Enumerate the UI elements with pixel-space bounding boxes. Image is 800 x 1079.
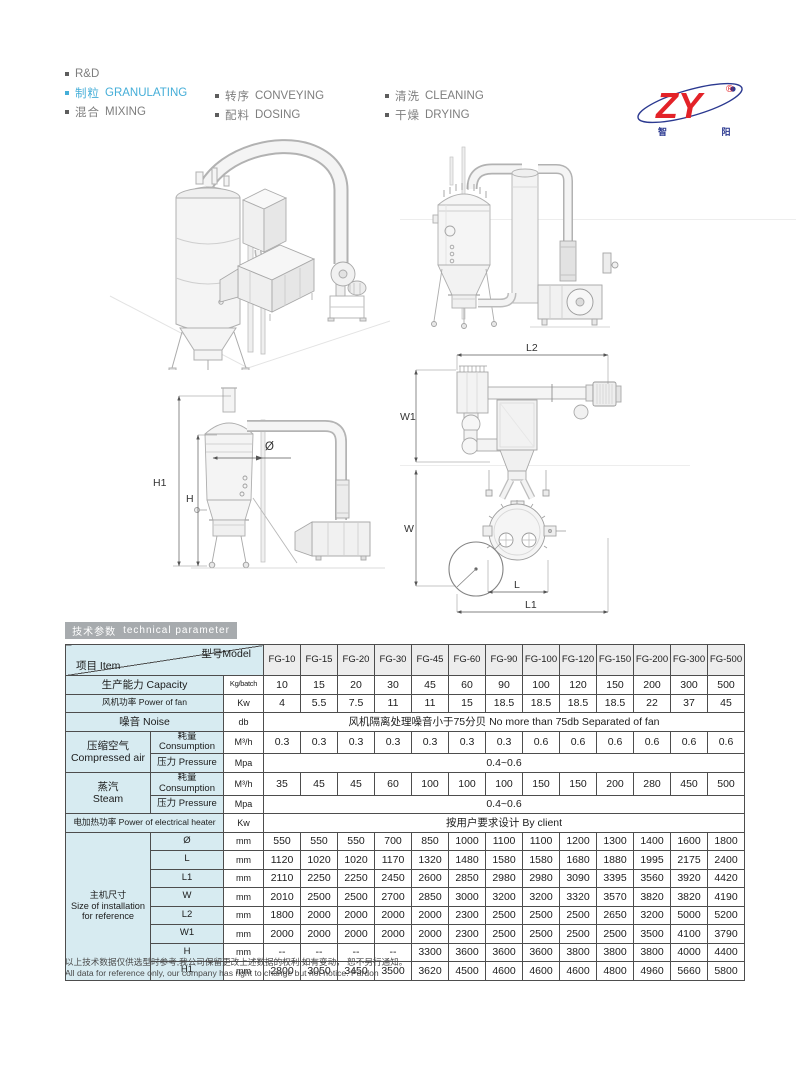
corner-model-label: 型号Model — [201, 648, 251, 660]
value-cell: 45 — [708, 694, 745, 713]
value-cell: 1000 — [449, 832, 486, 851]
value-cell: 60 — [449, 676, 486, 695]
dim-label-h1: H1 — [153, 477, 167, 489]
value-cell: 2980 — [523, 869, 560, 888]
menu-label-cn: 干燥 — [395, 107, 420, 123]
value-cell: 4400 — [708, 943, 745, 962]
value-cell: 1300 — [597, 832, 634, 851]
value-cell: 2500 — [301, 888, 338, 907]
value-cell: 2300 — [449, 906, 486, 925]
value-cell: 500 — [708, 676, 745, 695]
value-cell: 0.6 — [671, 731, 708, 754]
value-cell: 1020 — [338, 851, 375, 870]
value-cell: 2980 — [486, 869, 523, 888]
value-cell: 120 — [560, 676, 597, 695]
menu-label: R&D — [75, 68, 99, 80]
value-cell: 0.6 — [708, 731, 745, 754]
value-cell: 100 — [486, 772, 523, 795]
model-header: FG-20 — [338, 645, 375, 676]
value-cell: 3600 — [523, 943, 560, 962]
value-cell: 1580 — [486, 851, 523, 870]
value-cell: 1100 — [486, 832, 523, 851]
value-cell: 550 — [264, 832, 301, 851]
row-label: 风机功率 Power of fan — [66, 694, 224, 713]
value-cell: 7.5 — [338, 694, 375, 713]
row-sublabel: L1 — [151, 869, 224, 888]
value-cell: 0.3 — [375, 731, 412, 754]
unit-cell: Kw — [224, 694, 264, 713]
value-cell: 700 — [375, 832, 412, 851]
value-cell: 90 — [486, 676, 523, 695]
value-cell: 3200 — [523, 888, 560, 907]
value-cell: 200 — [597, 772, 634, 795]
value-cell: 550 — [301, 832, 338, 851]
value-cell: 2175 — [671, 851, 708, 870]
menu-label-cn: 混合 — [75, 104, 100, 120]
value-cell: 45 — [412, 676, 449, 695]
value-cell: 0.3 — [412, 731, 449, 754]
value-cell: 3600 — [449, 943, 486, 962]
value-cell: 280 — [634, 772, 671, 795]
corner-item-label: 项目 Item — [76, 660, 120, 672]
value-cell: 4100 — [671, 925, 708, 944]
value-cell: 2400 — [708, 851, 745, 870]
unit-cell: mm — [224, 869, 264, 888]
row-sublabel: W — [151, 888, 224, 907]
menu-column-2: 转序 CONVEYING 配料 DOSING — [215, 86, 324, 124]
value-cell: 15 — [449, 694, 486, 713]
value-cell: 37 — [671, 694, 708, 713]
value-cell: 5000 — [671, 906, 708, 925]
value-cell: 60 — [375, 772, 412, 795]
menu-label-en: DOSING — [255, 109, 300, 121]
row-sublabel: 耗量Consumption — [151, 731, 224, 754]
catalog-page: R&D 制粒 GRANULATING 混合 MIXING 转序 CONVEYIN… — [0, 0, 800, 1079]
menu-item-mixing[interactable]: 混合 MIXING — [65, 102, 187, 121]
banner-title-cn: 技术参数 — [72, 623, 116, 638]
value-cell: 4600 — [560, 962, 597, 981]
value-cell: 45 — [338, 772, 375, 795]
unit-cell: Kg/batch — [224, 676, 264, 695]
value-cell: 1580 — [523, 851, 560, 870]
menu-label-en: CONVEYING — [255, 90, 324, 102]
menu-label-en: MIXING — [105, 106, 146, 118]
model-header: FG-300 — [671, 645, 708, 676]
value-cell: 3090 — [560, 869, 597, 888]
value-cell: 1600 — [671, 832, 708, 851]
value-cell: 500 — [708, 772, 745, 795]
value-cell: 3800 — [634, 943, 671, 962]
value-cell: 18.5 — [560, 694, 597, 713]
value-cell: 1400 — [634, 832, 671, 851]
value-cell: 150 — [560, 772, 597, 795]
value-cell: 450 — [671, 772, 708, 795]
value-cell: 1680 — [560, 851, 597, 870]
value-cell: 2500 — [523, 925, 560, 944]
unit-cell: Mpa — [224, 795, 264, 814]
value-cell: 4960 — [634, 962, 671, 981]
menu-label-en: DRYING — [425, 109, 470, 121]
value-cell: 3790 — [708, 925, 745, 944]
value-cell: 5800 — [708, 962, 745, 981]
menu-item-cleaning[interactable]: 清洗 CLEANING — [385, 86, 484, 105]
value-cell: 3920 — [671, 869, 708, 888]
value-cell: 2700 — [375, 888, 412, 907]
value-cell: 4600 — [523, 962, 560, 981]
value-cell: 2300 — [449, 925, 486, 944]
unit-cell: Kw — [224, 814, 264, 833]
value-cell: 3300 — [412, 943, 449, 962]
value-cell: 3395 — [597, 869, 634, 888]
bullet-icon — [385, 94, 389, 98]
value-cell: 1880 — [597, 851, 634, 870]
row-label: 生产能力 Capacity — [66, 676, 224, 695]
value-cell: 2000 — [412, 925, 449, 944]
row-group-label: 蒸汽 Steam — [66, 772, 151, 813]
corner-cell: 项目 Item型号Model — [66, 645, 264, 676]
value-cell: 1800 — [264, 906, 301, 925]
value-cell: 4800 — [597, 962, 634, 981]
value-cell: 850 — [412, 832, 449, 851]
model-header: FG-120 — [560, 645, 597, 676]
value-cell: 1995 — [634, 851, 671, 870]
value-cell: 1170 — [375, 851, 412, 870]
value-cell: 2000 — [338, 906, 375, 925]
value-cell: 1020 — [301, 851, 338, 870]
model-header: FG-200 — [634, 645, 671, 676]
value-cell: 2000 — [264, 925, 301, 944]
row-label: 噪音 Noise — [66, 713, 224, 732]
isometric-drawing-left — [100, 138, 400, 370]
value-cell: 4500 — [449, 962, 486, 981]
row-sublabel: L2 — [151, 906, 224, 925]
model-header: FG-30 — [375, 645, 412, 676]
model-header: FG-500 — [708, 645, 745, 676]
span-value-cell: 0.4~0.6 — [264, 754, 745, 773]
bullet-icon — [215, 94, 219, 98]
row-sublabel: 耗量Consumption — [151, 772, 224, 795]
span-value-cell: 0.4~0.6 — [264, 795, 745, 814]
model-header: FG-15 — [301, 645, 338, 676]
unit-cell: M³/h — [224, 731, 264, 754]
value-cell: 3800 — [597, 943, 634, 962]
value-cell: 0.6 — [523, 731, 560, 754]
section-banner: 技术参数 technical parameter — [65, 622, 237, 639]
value-cell: 3800 — [560, 943, 597, 962]
model-header: FG-60 — [449, 645, 486, 676]
value-cell: 22 — [634, 694, 671, 713]
dim-label-l1: L1 — [525, 599, 537, 611]
value-cell: 2010 — [264, 888, 301, 907]
menu-label-cn: 制粒 — [75, 85, 100, 101]
model-header: FG-90 — [486, 645, 523, 676]
value-cell: 2500 — [560, 925, 597, 944]
value-cell: 3500 — [634, 925, 671, 944]
value-cell: 2000 — [338, 925, 375, 944]
value-cell: 5660 — [671, 962, 708, 981]
menu-item-dosing[interactable]: 配料 DOSING — [215, 105, 324, 124]
value-cell: 2000 — [375, 925, 412, 944]
value-cell: 3820 — [671, 888, 708, 907]
value-cell: 2500 — [486, 925, 523, 944]
menu-label-cn: 转序 — [225, 88, 250, 104]
zy-logo-icon: ZY ® 智 阳 — [630, 76, 760, 140]
dim-label-w: W — [404, 523, 414, 535]
bullet-icon — [385, 113, 389, 117]
value-cell: 0.3 — [486, 731, 523, 754]
menu-item-granulating[interactable]: 制粒 GRANULATING — [65, 83, 187, 102]
value-cell: 35 — [264, 772, 301, 795]
unit-cell: mm — [224, 906, 264, 925]
unit-cell: mm — [224, 888, 264, 907]
bullet-icon — [215, 113, 219, 117]
logo-text: ZY — [655, 85, 705, 126]
unit-cell: mm — [224, 832, 264, 851]
value-cell: 0.6 — [597, 731, 634, 754]
value-cell: 3620 — [412, 962, 449, 981]
value-cell: 100 — [523, 676, 560, 695]
value-cell: 300 — [671, 676, 708, 695]
value-cell: 2000 — [301, 906, 338, 925]
value-cell: 1800 — [708, 832, 745, 851]
value-cell: 0.3 — [338, 731, 375, 754]
value-cell: 2250 — [338, 869, 375, 888]
dim-label-diameter: Ø — [265, 441, 274, 453]
value-cell: 11 — [375, 694, 412, 713]
menu-item-rd[interactable]: R&D — [65, 64, 187, 83]
value-cell: 2110 — [264, 869, 301, 888]
value-cell: 4 — [264, 694, 301, 713]
value-cell: 3200 — [486, 888, 523, 907]
value-cell: 4420 — [708, 869, 745, 888]
menu-label-cn: 配料 — [225, 107, 250, 123]
span-value-cell: 按用户要求设计 By client — [264, 814, 745, 833]
banner-title-en: technical parameter — [123, 625, 230, 636]
value-cell: 1320 — [412, 851, 449, 870]
value-cell: 5.5 — [301, 694, 338, 713]
menu-column-1: R&D 制粒 GRANULATING 混合 MIXING — [65, 64, 187, 121]
menu-item-drying[interactable]: 干燥 DRYING — [385, 105, 484, 124]
value-cell: 2000 — [375, 906, 412, 925]
value-cell: 0.6 — [560, 731, 597, 754]
value-cell: 3320 — [560, 888, 597, 907]
span-value-cell: 风机隔离处理噪音小于75分贝 No more than 75db Separat… — [264, 713, 745, 732]
row-sublabel: W1 — [151, 925, 224, 944]
model-header: FG-10 — [264, 645, 301, 676]
unit-cell: db — [224, 713, 264, 732]
value-cell: 100 — [412, 772, 449, 795]
dim-label-l2: L2 — [526, 342, 538, 354]
value-cell: 100 — [449, 772, 486, 795]
value-cell: 2250 — [301, 869, 338, 888]
value-cell: 3820 — [634, 888, 671, 907]
value-cell: 2600 — [412, 869, 449, 888]
value-cell: 11 — [412, 694, 449, 713]
value-cell: 200 — [634, 676, 671, 695]
value-cell: 3200 — [634, 906, 671, 925]
value-cell: 2500 — [597, 925, 634, 944]
value-cell: 15 — [301, 676, 338, 695]
value-cell: 1480 — [449, 851, 486, 870]
unit-cell: mm — [224, 851, 264, 870]
value-cell: 150 — [597, 676, 634, 695]
model-header: FG-45 — [412, 645, 449, 676]
value-cell: 10 — [264, 676, 301, 695]
value-cell: 18.5 — [486, 694, 523, 713]
dim-label-h: H — [186, 493, 194, 505]
value-cell: 1100 — [523, 832, 560, 851]
company-logo: ZY ® 智 阳 — [630, 76, 760, 140]
value-cell: 18.5 — [523, 694, 560, 713]
value-cell: 45 — [301, 772, 338, 795]
value-cell: 3570 — [597, 888, 634, 907]
menu-item-conveying[interactable]: 转序 CONVEYING — [215, 86, 324, 105]
bullet-icon — [65, 91, 69, 95]
value-cell: 0.3 — [264, 731, 301, 754]
value-cell: 2500 — [523, 906, 560, 925]
value-cell: 3560 — [634, 869, 671, 888]
value-cell: 0.3 — [301, 731, 338, 754]
parameter-table-wrapper: 项目 Item型号ModelFG-10FG-15FG-20FG-30FG-45F… — [65, 644, 745, 981]
row-label: 电加热功率 Power of electrical heater — [66, 814, 224, 833]
value-cell: 150 — [523, 772, 560, 795]
value-cell: 2850 — [449, 869, 486, 888]
bullet-icon — [65, 110, 69, 114]
row-sublabel: 压力 Pressure — [151, 754, 224, 773]
unit-cell: mm — [224, 925, 264, 944]
menu-label-en: GRANULATING — [105, 87, 187, 99]
isometric-drawing-right — [400, 145, 680, 345]
menu-column-3: 清洗 CLEANING 干燥 DRYING — [385, 86, 484, 124]
row-sublabel: L — [151, 851, 224, 870]
menu-label-en: CLEANING — [425, 90, 484, 102]
footer-note-en: All data for reference only, our company… — [65, 968, 407, 979]
value-cell: 2500 — [338, 888, 375, 907]
value-cell: 2000 — [301, 925, 338, 944]
value-cell: 20 — [338, 676, 375, 695]
row-sublabel: 压力 Pressure — [151, 795, 224, 814]
value-cell: 2450 — [375, 869, 412, 888]
parameter-table: 项目 Item型号ModelFG-10FG-15FG-20FG-30FG-45F… — [65, 644, 745, 981]
dim-label-w1: W1 — [400, 411, 416, 423]
value-cell: 1200 — [560, 832, 597, 851]
value-cell: 3000 — [449, 888, 486, 907]
model-header: FG-150 — [597, 645, 634, 676]
value-cell: 2650 — [597, 906, 634, 925]
value-cell: 4600 — [486, 962, 523, 981]
menu-label-cn: 清洗 — [395, 88, 420, 104]
value-cell: 3600 — [486, 943, 523, 962]
bullet-icon — [65, 72, 69, 76]
value-cell: 5200 — [708, 906, 745, 925]
footer-note-cn: 以上技术数据仅供选型时参考,我公司保留更改上述数据的权利,如有变动， 恕不另行通… — [65, 957, 407, 968]
value-cell: 18.5 — [597, 694, 634, 713]
unit-cell: M³/h — [224, 772, 264, 795]
dimension-drawing-plan: L2 W1 W L L1 — [400, 340, 690, 625]
model-header: FG-100 — [523, 645, 560, 676]
unit-cell: Mpa — [224, 754, 264, 773]
footer-note: 以上技术数据仅供选型时参考,我公司保留更改上述数据的权利,如有变动， 恕不另行通… — [65, 957, 407, 979]
dim-label-l: L — [514, 579, 520, 591]
value-cell: 2850 — [412, 888, 449, 907]
value-cell: 550 — [338, 832, 375, 851]
value-cell: 2500 — [560, 906, 597, 925]
value-cell: 1120 — [264, 851, 301, 870]
row-sublabel: Ø — [151, 832, 224, 851]
value-cell: 4000 — [671, 943, 708, 962]
value-cell: 0.3 — [449, 731, 486, 754]
value-cell: 30 — [375, 676, 412, 695]
logo-registered-mark: ® — [726, 84, 734, 95]
row-group-label: 压缩空气 Compressed air — [66, 731, 151, 772]
value-cell: 0.6 — [634, 731, 671, 754]
logo-subtext: 智 阳 — [658, 126, 757, 137]
value-cell: 4190 — [708, 888, 745, 907]
value-cell: 2500 — [486, 906, 523, 925]
value-cell: 2000 — [412, 906, 449, 925]
